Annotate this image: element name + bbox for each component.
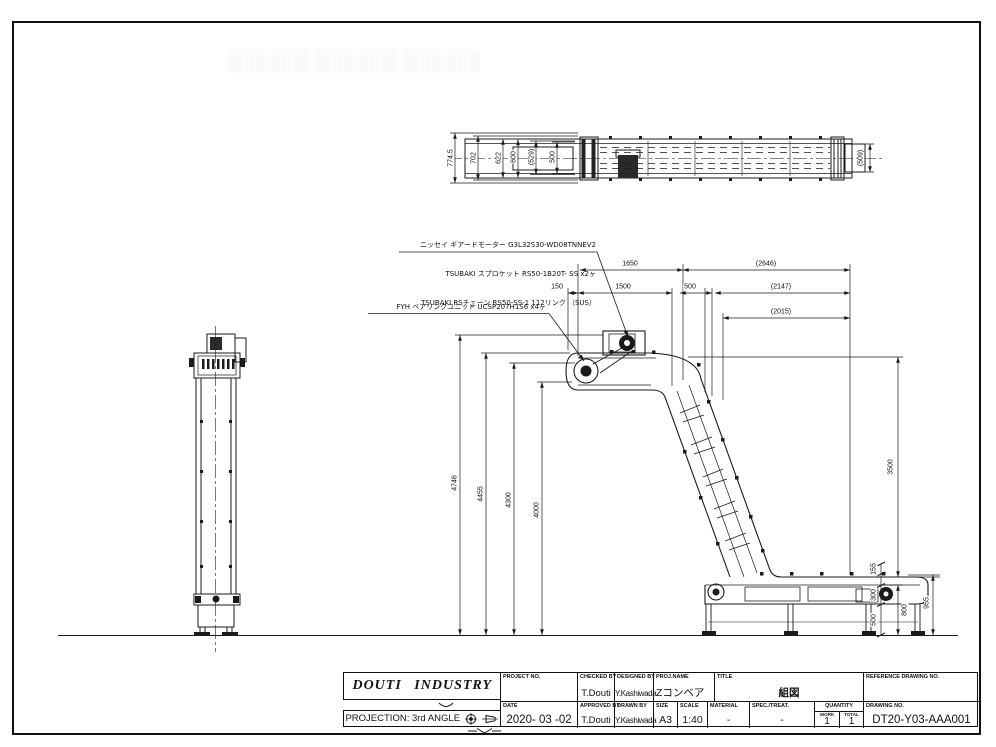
dim-label-2147: (2147) <box>770 284 792 291</box>
dim-label-800: 800 <box>902 603 909 617</box>
date-value: 2020- 03 -02 <box>501 715 577 726</box>
cell-proj-name: PROJ.NAME Zコンベア <box>653 673 714 701</box>
company-box: DOUTI INDUSTRY <box>343 672 502 700</box>
dim-label-529: (529) <box>529 148 536 166</box>
note-gear-motor: ニッセイ ギアードモーター G3L32S30-WD08TNNEV2 <box>330 241 596 251</box>
designed-by-value: Y.Kashiwada <box>615 688 653 699</box>
scale-label: SCALE <box>680 703 699 709</box>
cell-title: TITLE 組図 <box>714 673 863 701</box>
size-label: SIZE <box>656 703 668 709</box>
cell-scale: SCALE 1:40 <box>677 701 707 728</box>
dim-label-622: 622 <box>496 151 503 165</box>
cell-approved-by: APPROVED BY T.Douti <box>577 701 614 728</box>
front-view <box>189 326 246 652</box>
cell-spec-treat: SPEC./TREAT. - <box>749 701 814 728</box>
cell-reference-drawing-no: REFERENCE DRAWING NO. <box>863 673 979 701</box>
dim-label-300: 300 <box>871 588 878 602</box>
drawing-no-label: DRAWING NO. <box>866 703 904 709</box>
proj-name-value: Zコンベア <box>656 688 714 699</box>
elevation-legs <box>702 604 925 635</box>
third-angle-projection-icon <box>465 713 499 725</box>
material-label: MATERIAL <box>710 703 738 709</box>
reference-drawing-no-label: REFERENCE DRAWING NO. <box>866 674 939 680</box>
elevation-dimensions <box>455 264 940 637</box>
dim-label-4455: 4455 <box>478 485 485 503</box>
dim-label-2646: (2646) <box>755 261 777 268</box>
cell-checked-by: CHECKED BY T.Douti <box>577 673 614 701</box>
scale-value: 1:40 <box>678 715 707 726</box>
dim-label-600: 600 <box>511 150 518 164</box>
checked-by-value: T.Douti <box>578 688 614 699</box>
project-no-label: PROJECT NO. <box>503 674 540 680</box>
sheet-center-mark <box>468 729 501 734</box>
dim-label-500-top: 500 <box>683 284 697 291</box>
size-value: A3 <box>654 715 677 726</box>
dim-label-702: 702 <box>471 151 478 165</box>
designed-by-label: DESIGNED BY <box>617 674 655 680</box>
erased-watermark <box>228 49 480 73</box>
dim-label-955: 955 <box>924 596 931 610</box>
proj-name-label: PROJ.NAME <box>656 674 689 680</box>
quantity-total-cell: TOTAL 1 <box>839 711 863 728</box>
title-value: 組図 <box>715 688 863 699</box>
incline-slats <box>680 405 750 550</box>
checked-by-label: CHECKED BY <box>580 674 616 680</box>
total-value: 1 <box>840 716 863 727</box>
cell-project-no: PROJECT NO. <box>501 673 577 701</box>
cad-linework <box>0 0 996 747</box>
geared-motor <box>593 331 645 373</box>
approved-by-value: T.Douti <box>578 715 614 726</box>
dim-label-2015: (2015) <box>770 309 792 316</box>
cell-designed-by: DESIGNED BY Y.Kashiwada <box>614 673 653 701</box>
title-label: TITLE <box>717 674 732 680</box>
dim-label-4000: 4000 <box>534 501 541 519</box>
title-block: PROJECT NO. CHECKED BY T.Douti DESIGNED … <box>500 672 978 727</box>
drawing-sheet: 774.5 702 622 600 (529) 500 (509) 1650 (… <box>0 0 996 747</box>
elevation-cleat-dots <box>610 350 886 576</box>
dim-label-774-5: 774.5 <box>448 148 455 168</box>
quantity-work-cell: WORK 1 <box>815 711 839 728</box>
conveyor-outline-left <box>566 353 730 577</box>
date-label: DATE <box>503 703 518 709</box>
dim-label-4746: 4746 <box>452 474 459 492</box>
drawing-no-value: DT20-Y03-AAA001 <box>864 715 979 726</box>
cell-drawn-by: DRAWN BY Y.Kashiwada <box>614 701 653 728</box>
projection-label: PROJECTION: 3rd ANGLE <box>345 713 460 724</box>
dim-label-500-plan: 500 <box>550 150 557 164</box>
revision-squiggle-mark <box>438 701 454 709</box>
dim-label-1650: 1650 <box>621 261 639 268</box>
dim-label-1500: 1500 <box>614 284 632 291</box>
dim-label-3500: 3500 <box>888 458 895 476</box>
plan-motor <box>616 150 640 178</box>
spec-treat-value: - <box>750 715 814 726</box>
drawn-by-label: DRAWN BY <box>617 703 647 709</box>
dim-label-155: 155 <box>871 562 878 576</box>
bottom-tail-pulley <box>708 584 724 600</box>
dim-label-4300: 4300 <box>506 491 513 509</box>
cell-quantity: QUANTITY WORK 1 TOTAL 1 <box>814 701 863 728</box>
note-bearing-unit: FYH ベアリングユニット UCSP207H1S6 x4ヶ <box>330 303 546 312</box>
dim-label-500-right: 500 <box>871 613 878 627</box>
front-head-section <box>189 353 245 378</box>
spec-treat-label: SPEC./TREAT. <box>752 703 789 709</box>
cell-date: DATE 2020- 03 -02 <box>501 701 577 728</box>
front-tower-rails <box>196 378 236 594</box>
projection-box: PROJECTION: 3rd ANGLE <box>343 710 502 727</box>
sheet-border <box>13 22 980 734</box>
note-sprocket: TSUBAKI スプロケット RS50-1B20T- SS x2ヶ <box>330 270 596 280</box>
material-value: - <box>708 715 749 726</box>
tail-pulley-bearing <box>574 359 598 383</box>
work-value: 1 <box>815 716 839 727</box>
cell-material: MATERIAL - <box>707 701 749 728</box>
front-base <box>194 594 240 636</box>
cell-drawing-no: DRAWING NO. DT20-Y03-AAA001 <box>863 701 979 728</box>
company-name: DOUTI INDUSTRY <box>352 678 492 694</box>
cell-size: SIZE A3 <box>653 701 677 728</box>
dim-label-509: (509) <box>858 149 865 167</box>
drawn-by-value: Y.Kashiwada <box>615 715 653 726</box>
quantity-label: QUANTITY <box>815 703 863 709</box>
